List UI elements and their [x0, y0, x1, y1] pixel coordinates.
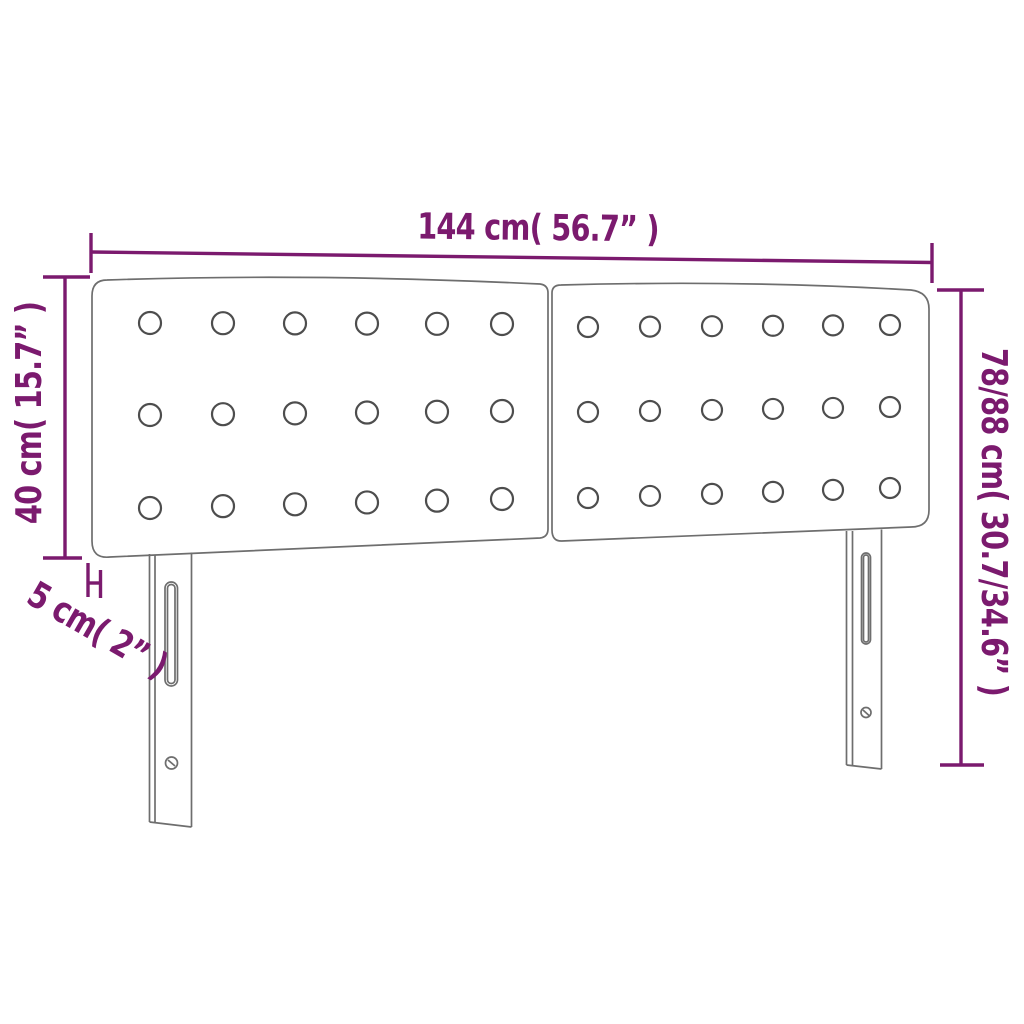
tufting-button	[426, 313, 448, 335]
left-leg	[150, 553, 192, 828]
tufting-button	[212, 495, 234, 517]
right-leg-bottom-edge	[847, 765, 882, 769]
thickness-dimension-marker	[88, 563, 101, 598]
tufting-button	[702, 400, 722, 420]
tufting-button	[284, 312, 306, 334]
tufting-button	[763, 399, 783, 419]
tufting-button	[763, 482, 783, 502]
tufting-button	[702, 316, 722, 336]
tufting-button	[356, 313, 378, 335]
headboard-right-panel	[552, 283, 929, 541]
right-leg-slot-inner	[864, 555, 869, 642]
tufting-button	[426, 490, 448, 512]
right-leg	[847, 530, 882, 770]
tufting-button	[880, 397, 900, 417]
tufting-button	[640, 401, 660, 421]
right-leg-screw-slot	[863, 710, 869, 716]
width-dim-line	[91, 252, 932, 263]
tufting-button	[139, 312, 161, 334]
tufting-button	[823, 480, 843, 500]
tufting-button	[880, 315, 900, 335]
tufting-button	[578, 402, 598, 422]
tufting-button	[284, 402, 306, 424]
left-leg-bottom-edge	[150, 822, 192, 827]
width-dimension-label: 144 cm( 56.7” )	[417, 210, 659, 249]
tufting-button	[139, 497, 161, 519]
tufting-button	[212, 312, 234, 334]
tufting-button	[702, 484, 722, 504]
tufting-button	[139, 404, 161, 426]
tufting-button	[491, 488, 513, 510]
tufting-button	[491, 400, 513, 422]
tufting-button	[212, 403, 234, 425]
left-height-dimension-line	[43, 277, 90, 558]
left-height-dimension-label: 40 cm( 15.7” )	[12, 302, 48, 524]
tufting-button	[823, 398, 843, 418]
tufting-button	[763, 316, 783, 336]
left-leg-screw-slot	[168, 760, 175, 766]
tufting-button	[823, 315, 843, 335]
tufting-button	[356, 402, 378, 424]
tufting-button	[356, 491, 378, 513]
right-height-dimension-label: 78/88 cm( 30.7/34.6” )	[975, 348, 1011, 696]
tufting-button	[284, 493, 306, 515]
left-leg-slot-inner	[168, 585, 176, 684]
tufting-button	[578, 317, 598, 337]
tufting-button	[640, 486, 660, 506]
tufting-button	[491, 313, 513, 335]
tufting-button	[426, 401, 448, 423]
tufting-button	[640, 317, 660, 337]
dimension-diagram: 144 cm( 56.7” ) 40 cm( 15.7” ) 78/88 cm(…	[0, 0, 1024, 1024]
tufting-button	[578, 488, 598, 508]
tufting-button	[880, 478, 900, 498]
headboard-line-art	[0, 0, 1024, 1024]
